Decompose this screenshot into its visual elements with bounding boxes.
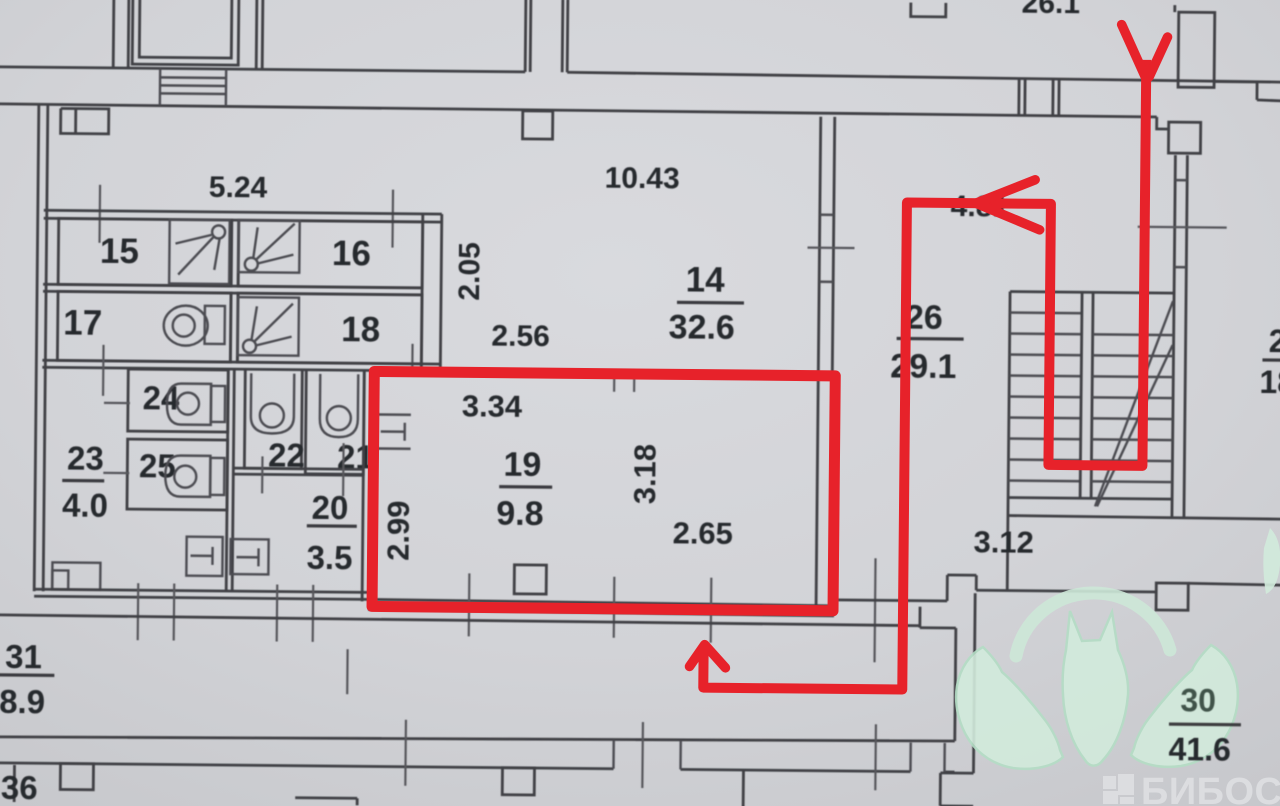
svg-text:25: 25 [139,447,176,484]
svg-text:14: 14 [686,260,726,299]
svg-text:32.6: 32.6 [668,308,735,347]
svg-text:18: 18 [1259,364,1280,400]
svg-text:2.99: 2.99 [380,500,416,561]
svg-text:2.05: 2.05 [453,242,487,301]
svg-text:17: 17 [63,303,102,342]
svg-text:3.34: 3.34 [462,388,523,424]
svg-text:29.1: 29.1 [890,347,957,386]
svg-text:5.24: 5.24 [209,171,268,205]
svg-text:10.43: 10.43 [604,162,679,196]
svg-text:2.65: 2.65 [672,515,733,551]
svg-text:9.8: 9.8 [496,495,544,533]
svg-text:2.56: 2.56 [491,320,550,354]
svg-text:19: 19 [503,446,541,484]
svg-text:23: 23 [67,440,104,477]
svg-text:3.18: 3.18 [627,444,663,505]
svg-text:26.1: 26.1 [1022,0,1081,20]
svg-text:3.5: 3.5 [306,539,352,576]
svg-text:8.9: 8.9 [0,683,45,720]
svg-text:16: 16 [332,234,371,273]
svg-text:2: 2 [1269,323,1280,359]
svg-text:36: 36 [1,769,38,806]
svg-text:3.12: 3.12 [973,524,1034,560]
svg-text:БИБОСС: БИБОСС [1141,771,1280,806]
svg-text:30: 30 [1180,682,1216,718]
svg-text:4.0: 4.0 [62,486,108,523]
svg-text:41.6: 41.6 [1168,731,1231,768]
svg-text:18: 18 [341,310,380,349]
svg-text:31: 31 [5,638,42,675]
svg-text:15: 15 [100,232,139,271]
